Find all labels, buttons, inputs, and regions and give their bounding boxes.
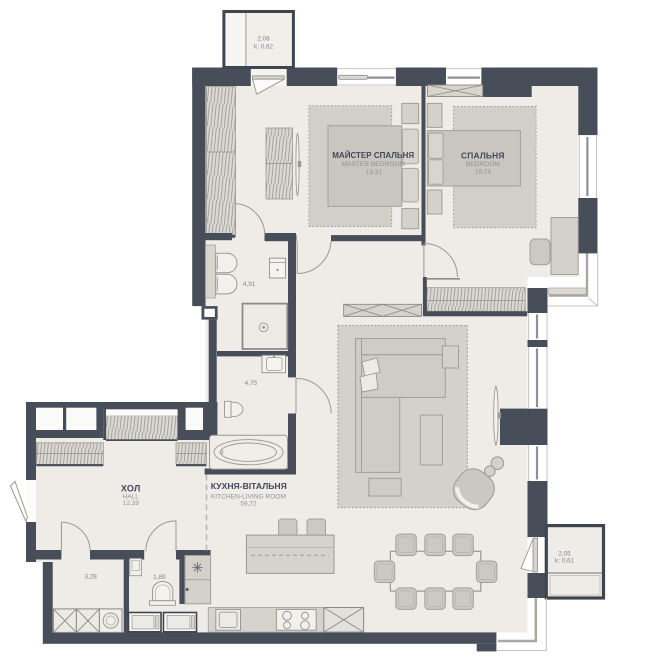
svg-text:2,05: 2,05	[558, 550, 571, 557]
svg-text:КУХНЯ-ВІТАЛЬНЯ: КУХНЯ-ВІТАЛЬНЯ	[211, 481, 287, 491]
svg-text:4,91: 4,91	[243, 281, 256, 288]
svg-text:k: 0,61: k: 0,61	[555, 557, 574, 564]
svg-text:ХОЛ: ХОЛ	[121, 483, 141, 493]
svg-text:BEDROOM: BEDROOM	[466, 161, 500, 168]
svg-text:2,08: 2,08	[257, 36, 270, 43]
svg-text:4,75: 4,75	[245, 380, 258, 387]
svg-text:19,31: 19,31	[366, 169, 382, 176]
svg-text:МАЙСТЕР СПАЛЬНЯ: МАЙСТЕР СПАЛЬНЯ	[332, 151, 414, 160]
svg-text:k: 0,62: k: 0,62	[254, 44, 273, 51]
svg-text:1,89: 1,89	[153, 574, 166, 581]
svg-text:KITCHEN-LIVING ROOM: KITCHEN-LIVING ROOM	[211, 493, 286, 500]
svg-text:MASTER BEDROOM: MASTER BEDROOM	[342, 161, 405, 168]
svg-text:59,72: 59,72	[240, 500, 256, 507]
svg-text:19,74: 19,74	[475, 169, 491, 176]
svg-text:3,28: 3,28	[84, 573, 97, 580]
svg-text:СПАЛЬНЯ: СПАЛЬНЯ	[461, 151, 505, 161]
svg-text:12,39: 12,39	[123, 500, 139, 507]
